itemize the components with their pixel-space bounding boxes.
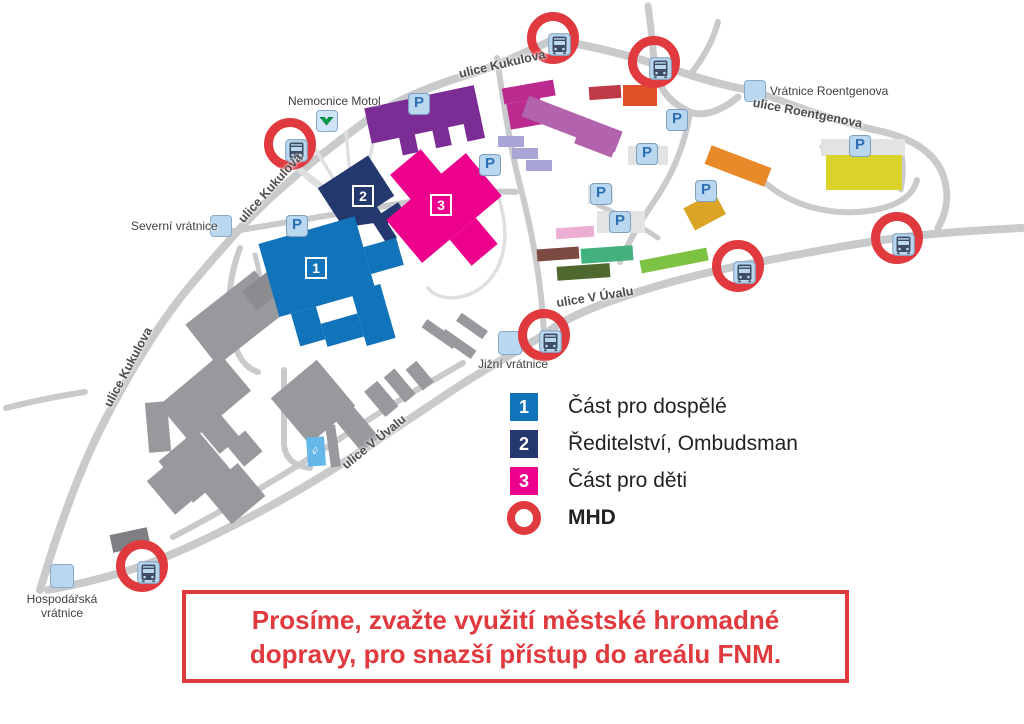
building-dark-red bbox=[589, 85, 622, 100]
parking-icon: P bbox=[849, 135, 871, 157]
parking-icon: P bbox=[609, 211, 631, 233]
metro-icon bbox=[316, 110, 338, 132]
notice-line-1: Prosíme, zvažte využití městské hromadné bbox=[186, 603, 845, 637]
legend-label: MHD bbox=[568, 506, 616, 530]
parking-icon: P bbox=[479, 154, 501, 176]
bus-icon bbox=[137, 561, 160, 584]
bus-stop-marker bbox=[871, 212, 923, 264]
map-legend: 1 Část pro dospělé 2 Ředitelství, Ombuds… bbox=[510, 388, 798, 536]
building-light-green bbox=[639, 248, 708, 274]
building-teal-green bbox=[581, 245, 634, 264]
legend-marker-3: 3 bbox=[510, 467, 538, 495]
parking-icon: P bbox=[695, 180, 717, 202]
bus-stop-marker bbox=[518, 309, 570, 361]
building-marker-1: 1 bbox=[305, 257, 327, 279]
bus-icon bbox=[548, 33, 571, 56]
building-brown bbox=[537, 247, 580, 262]
mhd-notice: Prosíme, zvažte využití městské hromadné… bbox=[182, 590, 849, 683]
parking-icon: P bbox=[590, 183, 612, 205]
bus-stop-marker bbox=[628, 36, 680, 88]
parking-icon: P bbox=[666, 109, 688, 131]
notice-line-2: dopravy, pro snazší přístup do areálu FN… bbox=[186, 637, 845, 671]
building-yellow bbox=[826, 155, 902, 190]
building-pink bbox=[556, 226, 595, 240]
legend-marker-1: 1 bbox=[510, 393, 538, 421]
gate-severni-label: Severní vrátnice bbox=[131, 219, 218, 233]
mhd-ring-icon bbox=[507, 501, 541, 535]
bus-icon bbox=[733, 261, 756, 284]
gate-hospodarska-icon bbox=[50, 564, 74, 588]
parking-icon: P bbox=[636, 143, 658, 165]
building-red-orange bbox=[623, 85, 657, 106]
building-marker-2: 2 bbox=[352, 185, 374, 207]
campus-map: 47 1 2 3 P P P P P P P P P Nemocnic bbox=[0, 0, 1024, 724]
parking-icon: P bbox=[408, 93, 430, 115]
bus-icon bbox=[539, 330, 562, 353]
bus-stop-marker bbox=[712, 240, 764, 292]
building-47: 47 bbox=[306, 436, 326, 466]
legend-item-children: 3 Část pro děti bbox=[510, 462, 798, 499]
legend-item-adults: 1 Část pro dospělé bbox=[510, 388, 798, 425]
parking-icon: P bbox=[286, 215, 308, 237]
bus-stop-marker bbox=[116, 540, 168, 592]
building-olive bbox=[557, 263, 611, 281]
legend-label: Ředitelství, Ombudsman bbox=[568, 432, 798, 456]
bus-icon bbox=[892, 233, 915, 256]
legend-item-mhd: MHD bbox=[510, 499, 798, 536]
gate-jizni-label: Jižní vrátnice bbox=[478, 357, 548, 371]
gate-hospodarska-label: Hospodářská vrátnice bbox=[17, 592, 107, 620]
bus-icon bbox=[649, 57, 672, 80]
building-marker-3: 3 bbox=[430, 194, 452, 216]
legend-label: Část pro děti bbox=[568, 469, 687, 493]
legend-label: Část pro dospělé bbox=[568, 395, 727, 419]
legend-item-directorate: 2 Ředitelství, Ombudsman bbox=[510, 425, 798, 462]
station-label: Nemocnice Motol bbox=[288, 94, 381, 108]
gate-roentgenova-label: Vrátnice Roentgenova bbox=[770, 84, 888, 98]
legend-marker-2: 2 bbox=[510, 430, 538, 458]
building-periwinkle bbox=[498, 136, 552, 171]
